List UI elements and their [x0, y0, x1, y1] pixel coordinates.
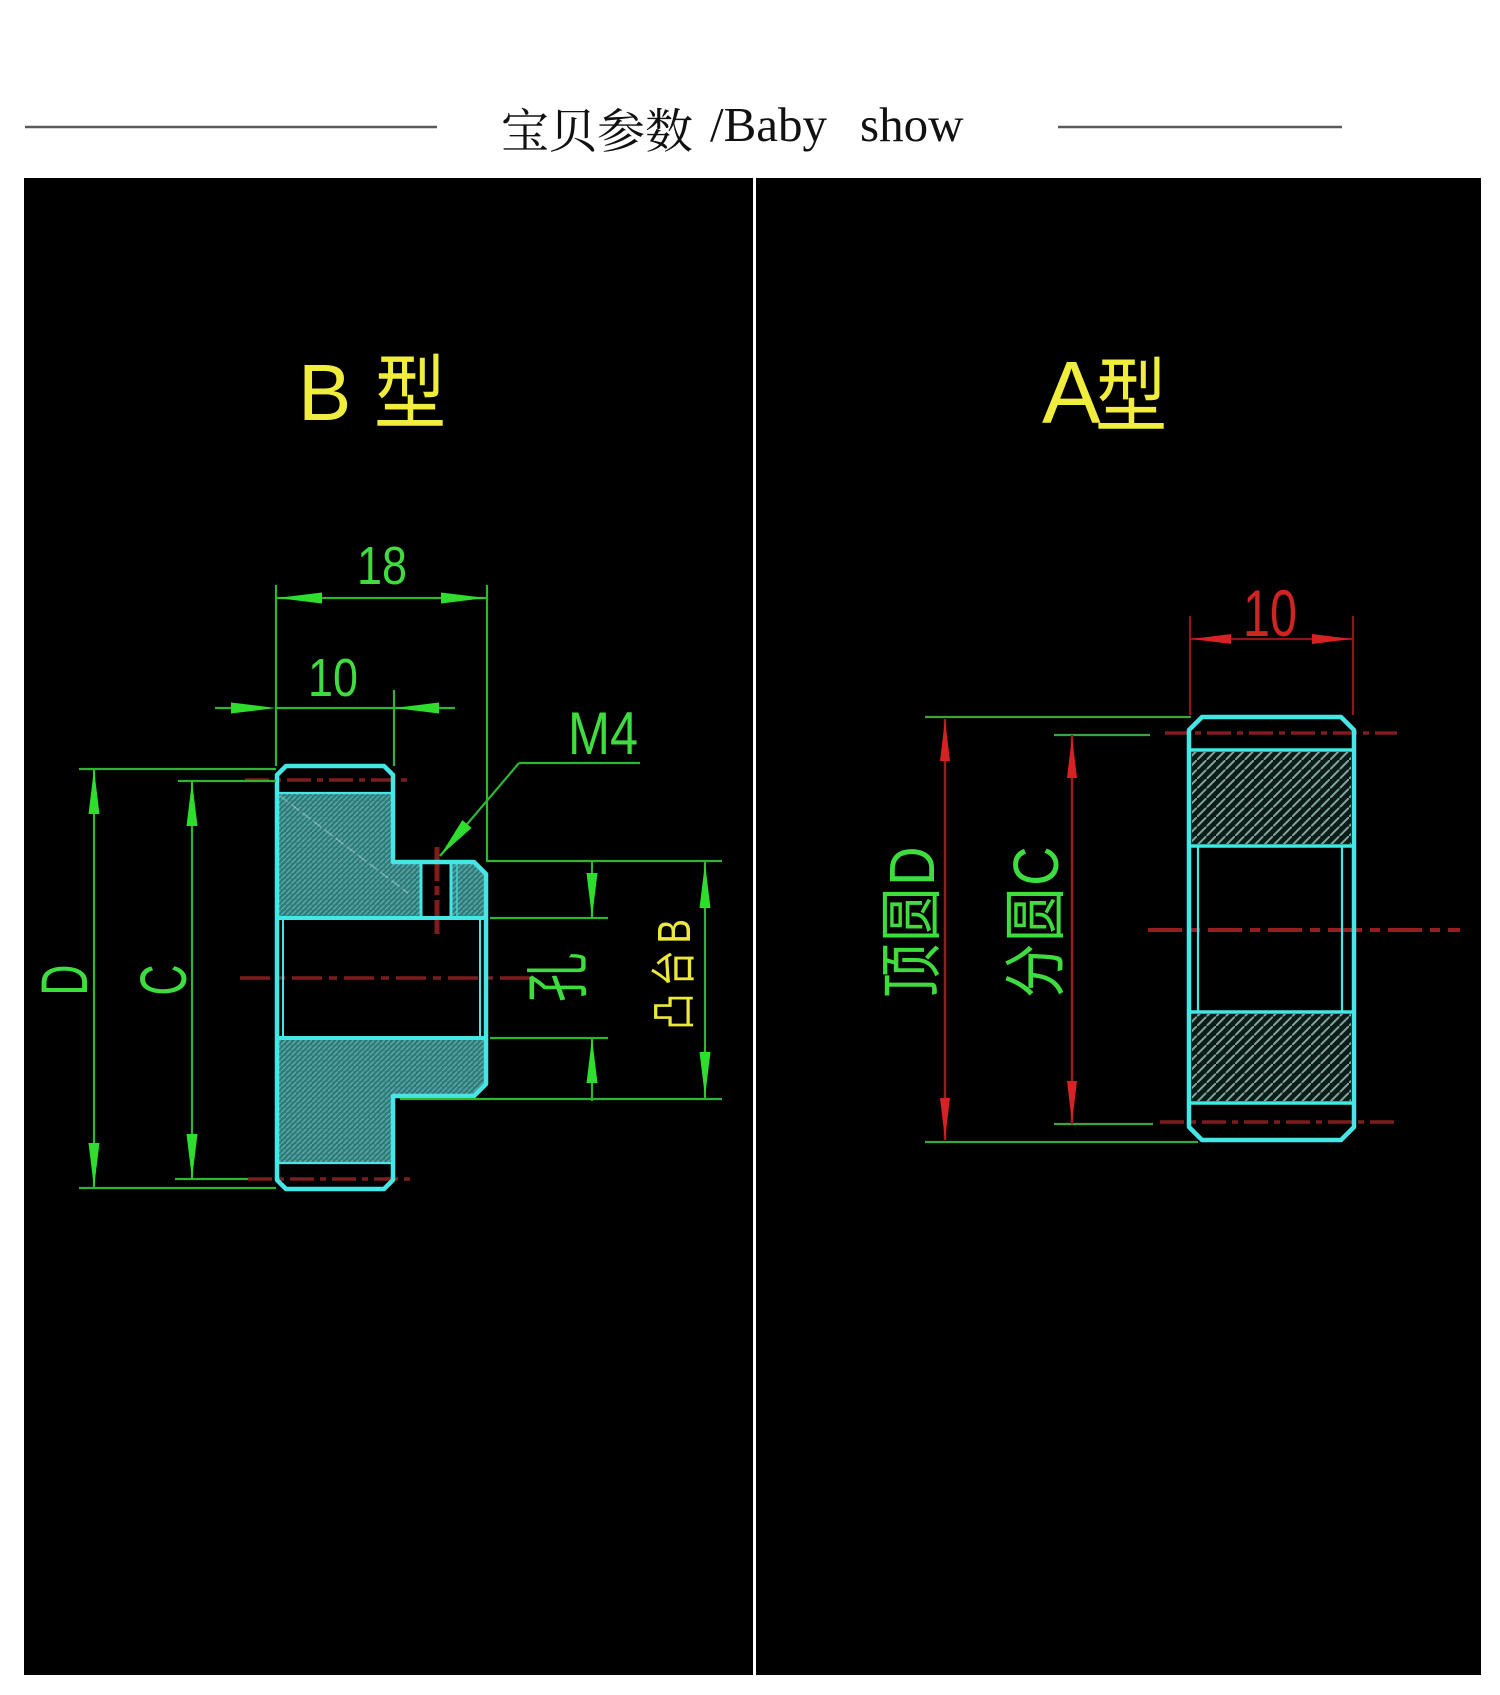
- svg-text:C: C: [1000, 847, 1072, 886]
- svg-text:B: B: [298, 348, 351, 437]
- svg-text:D: D: [28, 965, 102, 996]
- svg-text:show: show: [860, 97, 964, 152]
- svg-text:A: A: [1042, 343, 1101, 442]
- svg-text:10: 10: [308, 648, 358, 708]
- svg-text:D: D: [876, 847, 948, 886]
- svg-text:C: C: [127, 965, 201, 996]
- svg-text:M4: M4: [568, 700, 638, 767]
- svg-text:/Baby: /Baby: [710, 97, 828, 152]
- svg-text:10: 10: [1243, 576, 1297, 650]
- svg-text:B: B: [648, 919, 700, 944]
- svg-text:18: 18: [357, 536, 407, 596]
